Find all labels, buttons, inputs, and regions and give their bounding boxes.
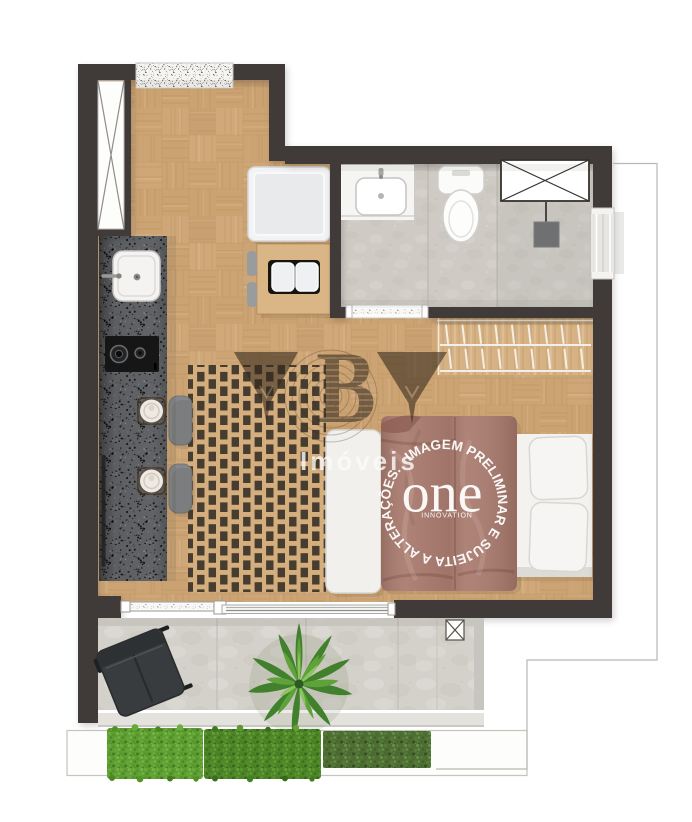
svg-text:INNOVATION: INNOVATION — [421, 513, 473, 520]
